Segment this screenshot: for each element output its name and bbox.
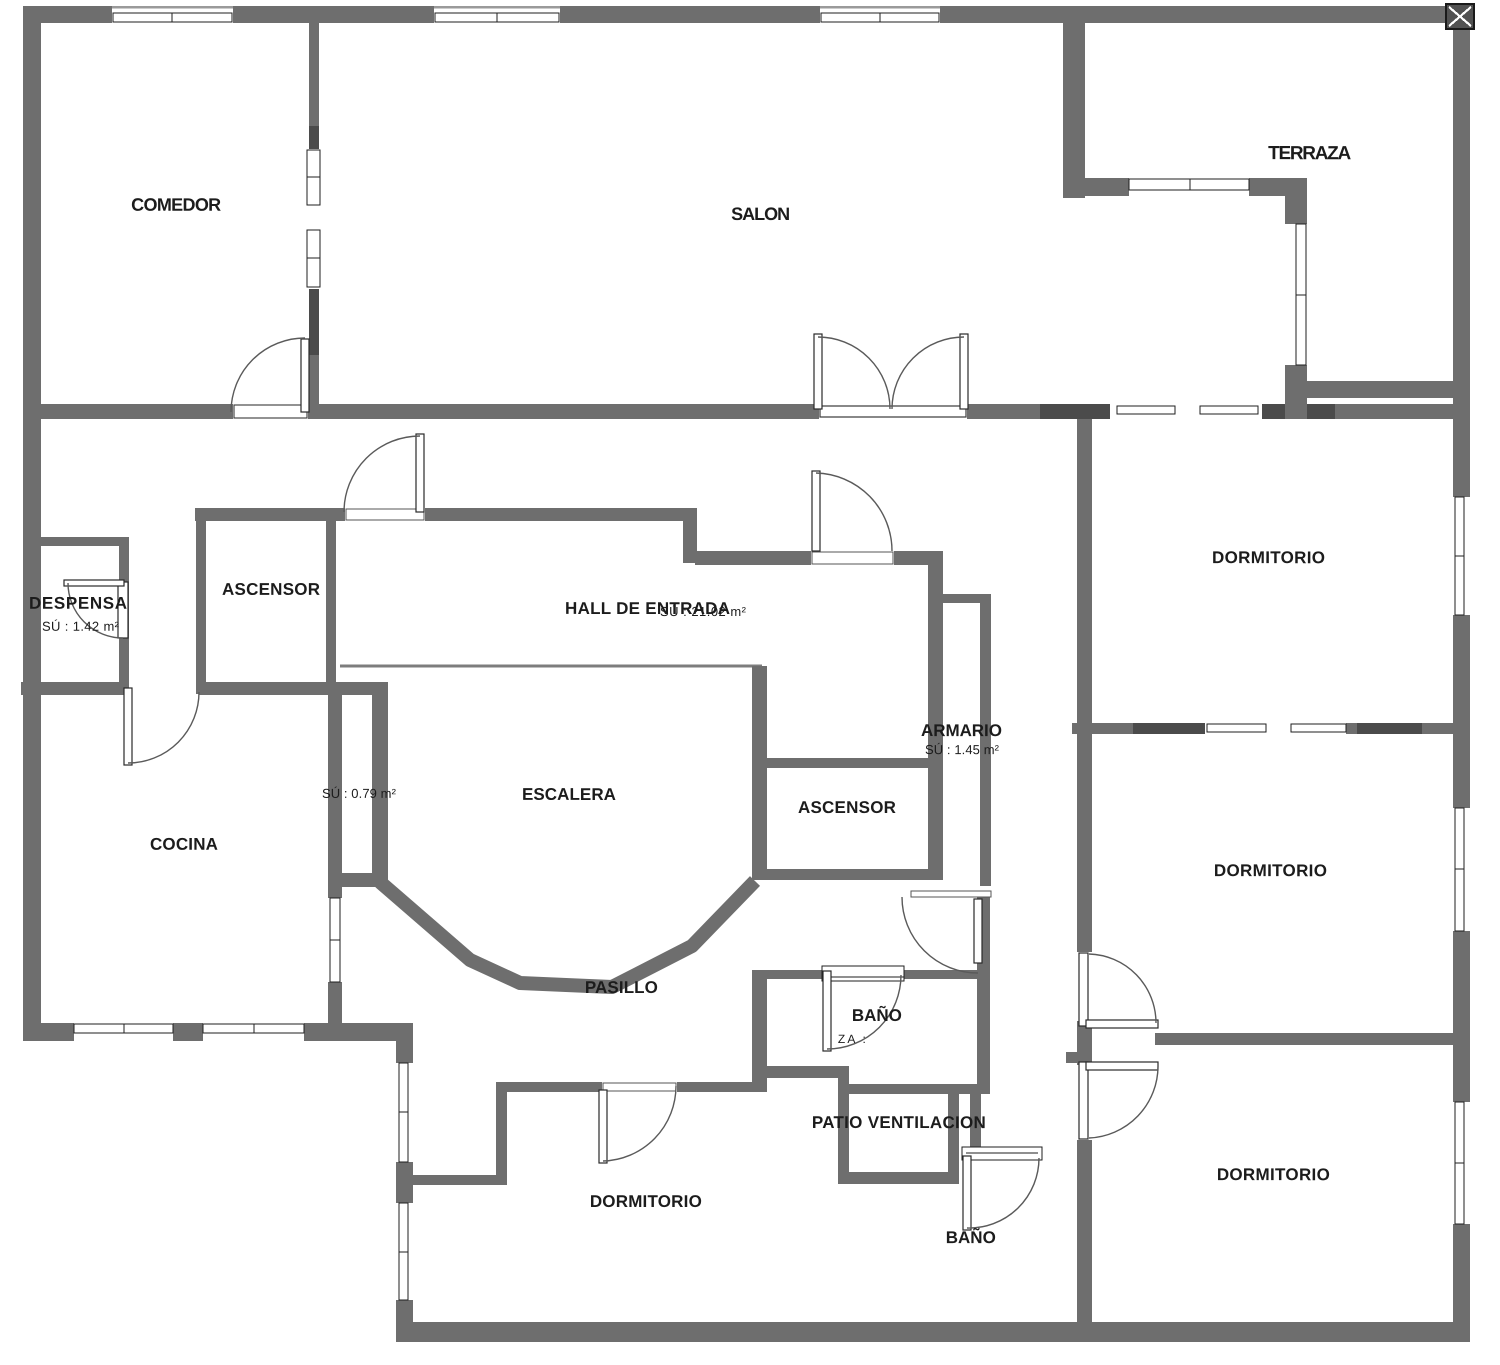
svg-text:DORMITORIO: DORMITORIO [1212, 548, 1325, 567]
svg-text:ZA :: ZA : [838, 1032, 866, 1046]
svg-text:BAÑO: BAÑO [852, 1005, 902, 1025]
svg-text:COMEDOR: COMEDOR [131, 195, 221, 215]
svg-text:SÚ : 0.79 m²: SÚ : 0.79 m² [322, 786, 397, 801]
svg-text:ESCALERA: ESCALERA [522, 785, 616, 804]
svg-text:DESPENSA: DESPENSA [29, 594, 127, 613]
svg-text:ARMARIO: ARMARIO [921, 721, 1002, 740]
svg-text:COCINA: COCINA [150, 835, 218, 854]
svg-text:SÚ : 1.45 m²: SÚ : 1.45 m² [925, 742, 1000, 757]
svg-text:DORMITORIO: DORMITORIO [590, 1192, 702, 1211]
svg-text:ASCENSOR: ASCENSOR [798, 798, 896, 817]
svg-text:BAÑO: BAÑO [946, 1227, 996, 1247]
svg-text:PATIO VENTILACION: PATIO VENTILACION [812, 1113, 986, 1132]
svg-text:SÚ : 1.42 m²: SÚ : 1.42 m² [42, 619, 120, 634]
svg-text:SÚ : 21.02 m²: SÚ : 21.02 m² [660, 604, 747, 619]
svg-text:TERRAZA: TERRAZA [1268, 143, 1351, 164]
svg-text:ASCENSOR: ASCENSOR [222, 580, 320, 599]
svg-text:DORMITORIO: DORMITORIO [1217, 1165, 1330, 1184]
svg-text:PASILLO: PASILLO [585, 978, 658, 997]
svg-text:DORMITORIO: DORMITORIO [1214, 861, 1327, 880]
svg-text:SALON: SALON [731, 204, 790, 224]
